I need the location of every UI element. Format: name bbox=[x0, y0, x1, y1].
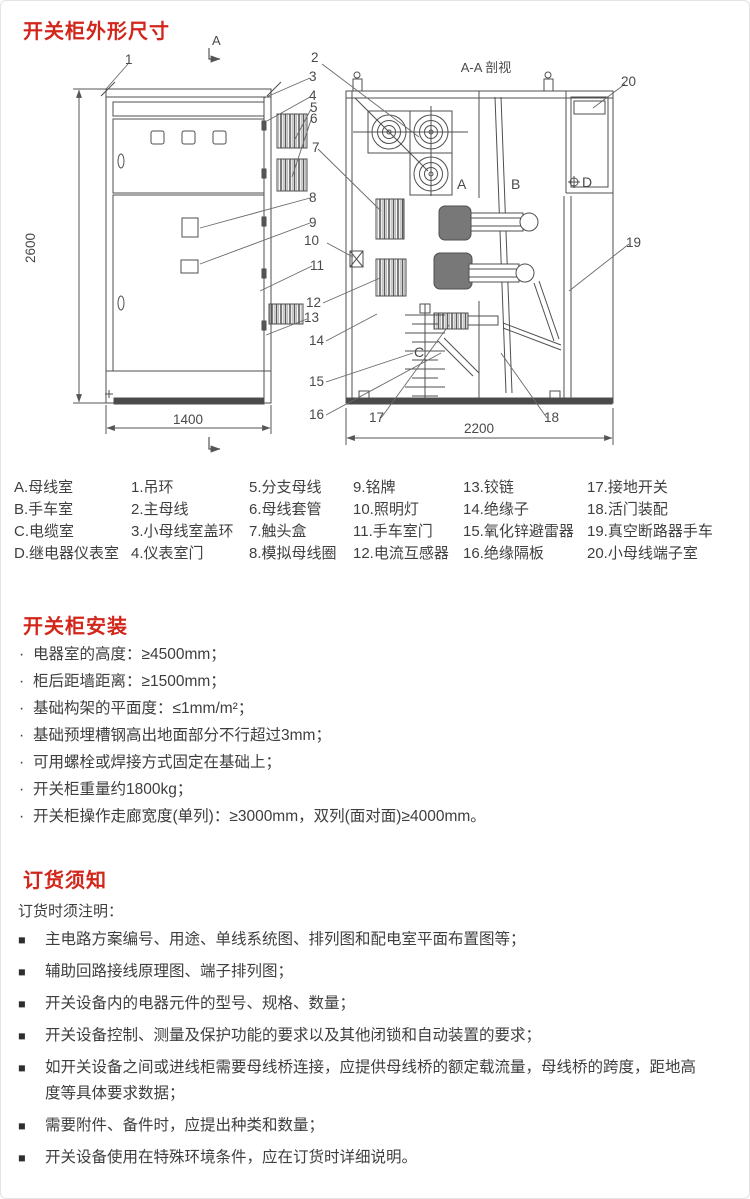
legend-column-compartments: A.母线室 B.手车室 C.电缆室 D.继电器仪表室 bbox=[14, 477, 119, 565]
legend-column-5-8: 5.分支母线 6.母线套管 7.触头盒 8.模拟母线圈 bbox=[249, 477, 337, 565]
dim-depth-label: 2200 bbox=[464, 421, 494, 436]
square-bullet: ■ bbox=[18, 927, 45, 953]
dot-bullet: · bbox=[19, 646, 33, 663]
installation-item: ·开关柜重量约1800kg； bbox=[19, 781, 719, 798]
installation-item: ·基础预埋槽钢高出地面部分不行超过3mm； bbox=[19, 727, 719, 744]
callout-7: 7 bbox=[312, 140, 320, 155]
dot-bullet: · bbox=[19, 700, 33, 717]
dim-height-label: 2600 bbox=[23, 233, 38, 263]
legend-item: 8.模拟母线圈 bbox=[249, 543, 337, 565]
ordering-item-text: 如开关设备之间或进线柜需要母线桥连接，应提供母线桥的额定载流量，母线桥的跨度，距… bbox=[45, 1055, 705, 1107]
legend-column-17-20: 17.接地开关 18.活门装配 19.真空断路器手车 20.小母线端子室 bbox=[587, 477, 713, 565]
square-bullet: ■ bbox=[18, 1113, 45, 1139]
callout-11: 11 bbox=[310, 258, 324, 273]
callout-9: 9 bbox=[309, 215, 317, 230]
callout-19: 19 bbox=[626, 235, 641, 250]
installation-item-text: 可用螺栓或焊接方式固定在基础上； bbox=[33, 754, 281, 771]
dot-bullet: · bbox=[19, 808, 33, 825]
ordering-item: ■需要附件、备件时，应提出种类和数量； bbox=[18, 1113, 705, 1139]
legend-item: 5.分支母线 bbox=[249, 477, 337, 499]
callout-6: 6 bbox=[310, 111, 318, 126]
aa-view-label: A-A 剖视 bbox=[461, 60, 512, 75]
legend-item: 20.小母线端子室 bbox=[587, 543, 713, 565]
dot-bullet: · bbox=[19, 781, 33, 798]
front-view bbox=[101, 82, 307, 404]
parts-legend: A.母线室 B.手车室 C.电缆室 D.继电器仪表室 1.吊环 2.主母线 3.… bbox=[1, 477, 750, 573]
ordering-intro: 订货时须注明： bbox=[18, 900, 123, 921]
dot-bullet: · bbox=[19, 754, 33, 771]
callout-20: 20 bbox=[621, 74, 636, 89]
installation-section-title: 开关柜安装 bbox=[23, 610, 128, 639]
legend-item: 11.手车室门 bbox=[353, 521, 449, 543]
ordering-item: ■开关设备内的电器元件的型号、规格、数量； bbox=[18, 991, 705, 1017]
installation-item: ·基础构架的平面度：≤1mm/m²； bbox=[19, 700, 719, 717]
legend-item: 19.真空断路器手车 bbox=[587, 521, 713, 543]
callout-10: 10 bbox=[304, 233, 319, 248]
ordering-section-title: 订货须知 bbox=[23, 864, 107, 893]
installation-item: ·可用螺栓或焊接方式固定在基础上； bbox=[19, 754, 719, 771]
ordering-item: ■如开关设备之间或进线柜需要母线桥连接，应提供母线桥的额定载流量，母线桥的跨度，… bbox=[18, 1055, 705, 1107]
ordering-item-text: 开关设备使用在特殊环境条件，应在订货时详细说明。 bbox=[45, 1145, 705, 1171]
compartment-b-label: B bbox=[511, 176, 520, 192]
legend-item: 13.铰链 bbox=[463, 477, 574, 499]
ordering-item-text: 需要附件、备件时，应提出种类和数量； bbox=[45, 1113, 705, 1139]
callout-18: 18 bbox=[544, 410, 559, 425]
ordering-item-text: 主电路方案编号、用途、单线系统图、排列图和配电室平面布置图等； bbox=[45, 927, 705, 953]
busbar-bushings bbox=[353, 98, 468, 196]
legend-item: C.电缆室 bbox=[14, 521, 119, 543]
callout-17: 17 bbox=[369, 410, 384, 425]
legend-item: D.继电器仪表室 bbox=[14, 543, 119, 565]
installation-item-text: 开关柜重量约1800kg； bbox=[33, 781, 192, 798]
callout-8: 8 bbox=[309, 190, 317, 205]
dim-width-label: 1400 bbox=[173, 412, 203, 427]
legend-item: B.手车室 bbox=[14, 499, 119, 521]
section-cut-markers bbox=[209, 48, 220, 449]
legend-column-1-4: 1.吊环 2.主母线 3.小母线室盖环 4.仪表室门 bbox=[131, 477, 234, 565]
callout-12: 12 bbox=[306, 295, 321, 310]
installation-item-text: 柜后距墙距离：≥1500mm； bbox=[33, 673, 226, 690]
compartment-a-label: A bbox=[457, 176, 467, 192]
callout-16: 16 bbox=[309, 407, 324, 422]
legend-item: 7.触头盒 bbox=[249, 521, 337, 543]
compartment-d-label: D bbox=[582, 174, 592, 190]
legend-item: 6.母线套管 bbox=[249, 499, 337, 521]
ordering-item: ■开关设备使用在特殊环境条件，应在订货时详细说明。 bbox=[18, 1145, 705, 1171]
legend-item: 15.氧化锌避雷器 bbox=[463, 521, 574, 543]
legend-item: 3.小母线室盖环 bbox=[131, 521, 234, 543]
ordering-item-text: 辅助回路接线原理图、端子排列图； bbox=[45, 959, 705, 985]
square-bullet: ■ bbox=[18, 1055, 45, 1107]
ordering-item: ■主电路方案编号、用途、单线系统图、排列图和配电室平面布置图等； bbox=[18, 927, 705, 953]
installation-item-text: 基础构架的平面度：≤1mm/m²； bbox=[33, 700, 253, 717]
ordering-item: ■辅助回路接线原理图、端子排列图； bbox=[18, 959, 705, 985]
legend-item: 14.绝缘子 bbox=[463, 499, 574, 521]
legend-item: 9.铭牌 bbox=[353, 477, 449, 499]
legend-column-13-16: 13.铰链 14.绝缘子 15.氧化锌避雷器 16.绝缘隔板 bbox=[463, 477, 574, 565]
callout-14: 14 bbox=[309, 333, 325, 348]
installation-item: ·开关柜操作走廊宽度(单列)：≥3000mm，双列(面对面)≥4000mm。 bbox=[19, 808, 719, 825]
installation-item-text: 基础预埋槽钢高出地面部分不行超过3mm； bbox=[33, 727, 331, 744]
ordering-list: ■主电路方案编号、用途、单线系统图、排列图和配电室平面布置图等； ■辅助回路接线… bbox=[18, 927, 705, 1177]
square-bullet: ■ bbox=[18, 1023, 45, 1049]
callout-13: 13 bbox=[304, 310, 319, 325]
installation-item: ·电器室的高度：≥4500mm； bbox=[19, 646, 719, 663]
legend-item: 2.主母线 bbox=[131, 499, 234, 521]
ordering-item-text: 开关设备控制、测量及保护功能的要求以及其他闭锁和自动装置的要求； bbox=[45, 1023, 705, 1049]
legend-item: 16.绝缘隔板 bbox=[463, 543, 574, 565]
legend-item: 17.接地开关 bbox=[587, 477, 713, 499]
ordering-item-text: 开关设备内的电器元件的型号、规格、数量； bbox=[45, 991, 705, 1017]
legend-item: 12.电流互感器 bbox=[353, 543, 449, 565]
callout-1: 1 bbox=[125, 52, 133, 67]
installation-list: ·电器室的高度：≥4500mm； ·柜后距墙距离：≥1500mm； ·基础构架的… bbox=[19, 646, 719, 835]
ordering-item: ■开关设备控制、测量及保护功能的要求以及其他闭锁和自动装置的要求； bbox=[18, 1023, 705, 1049]
dot-bullet: · bbox=[19, 673, 33, 690]
section-view bbox=[346, 72, 613, 404]
legend-item: 18.活门装配 bbox=[587, 499, 713, 521]
callout-2: 2 bbox=[311, 50, 319, 65]
legend-item: 1.吊环 bbox=[131, 477, 234, 499]
legend-item: 4.仪表室门 bbox=[131, 543, 234, 565]
callout-3: 3 bbox=[309, 69, 317, 84]
square-bullet: ■ bbox=[18, 991, 45, 1017]
legend-column-9-12: 9.铭牌 10.照明灯 11.手车室门 12.电流互感器 bbox=[353, 477, 449, 565]
installation-item-text: 开关柜操作走廊宽度(单列)：≥3000mm，双列(面对面)≥4000mm。 bbox=[33, 808, 486, 825]
callout-15: 15 bbox=[309, 374, 324, 389]
square-bullet: ■ bbox=[18, 1145, 45, 1171]
legend-item: 10.照明灯 bbox=[353, 499, 449, 521]
catalog-page: 开关柜外形尺寸 bbox=[0, 0, 750, 1199]
section-marker-letter: A bbox=[212, 33, 221, 48]
legend-item: A.母线室 bbox=[14, 477, 119, 499]
dot-bullet: · bbox=[19, 727, 33, 744]
square-bullet: ■ bbox=[18, 959, 45, 985]
installation-item-text: 电器室的高度：≥4500mm； bbox=[33, 646, 226, 663]
compartment-c-label: C bbox=[414, 344, 424, 360]
installation-item: ·柜后距墙距离：≥1500mm； bbox=[19, 673, 719, 690]
cabinet-outline-diagram: 2600 1400 2200 A A-A 剖视 A B C D bbox=[1, 1, 750, 467]
